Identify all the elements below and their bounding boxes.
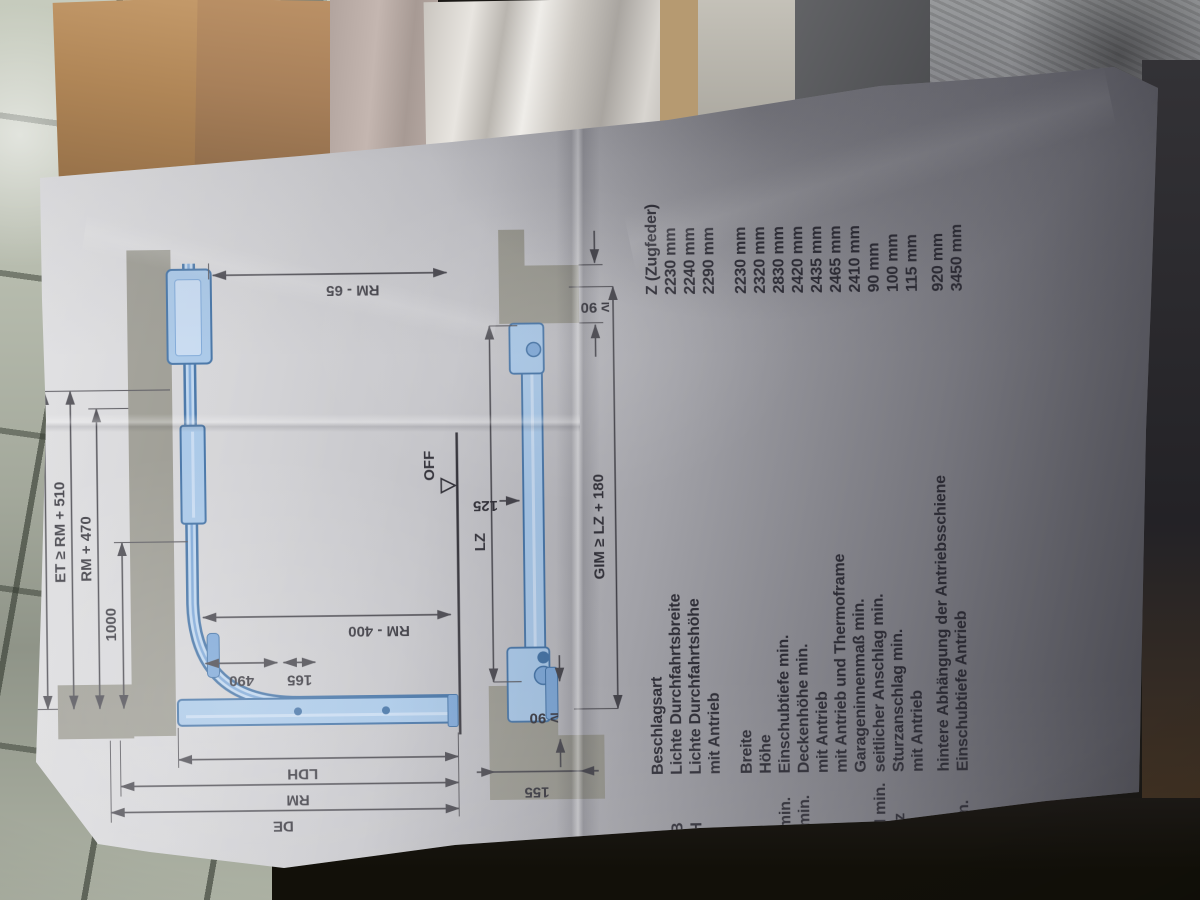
photo-scene: V1 ET ≥ RM + 510 RM + 470 1000 RM - 65 R… (0, 0, 1200, 900)
photo-vignette (0, 0, 1200, 900)
